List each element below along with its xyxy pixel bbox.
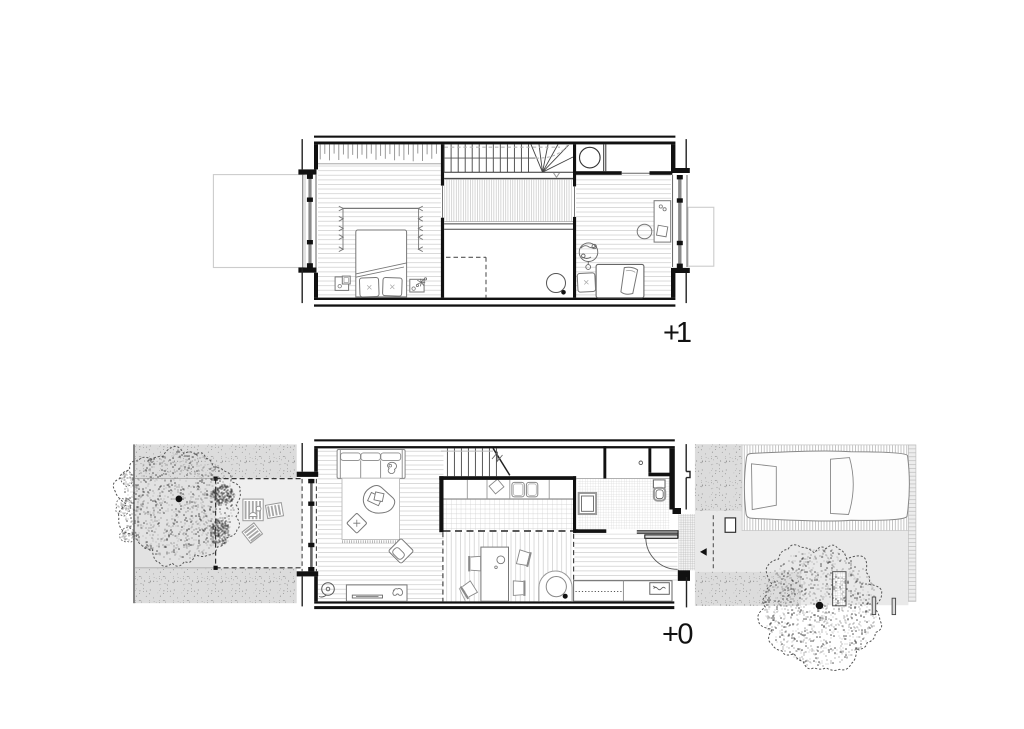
svg-text:+1: +1 — [663, 317, 691, 349]
svg-text:+0: +0 — [662, 619, 692, 651]
